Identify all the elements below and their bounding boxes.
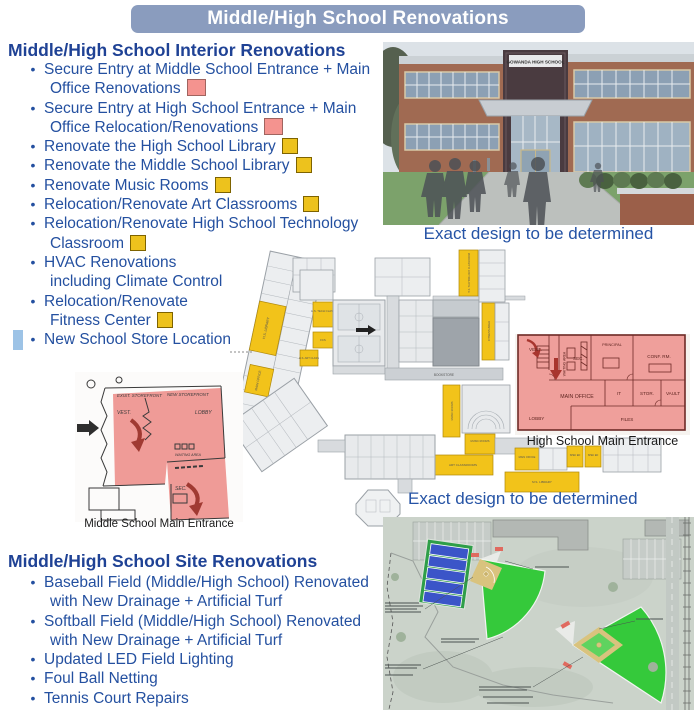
ms-plan-label-exist-storefront: EXIST. STOREFRONT bbox=[117, 393, 162, 398]
bullet-dot: • bbox=[31, 138, 36, 154]
ms-plan-label-new-storefront: NEW STOREFRONT bbox=[167, 392, 209, 397]
slide: Middle/High School Renovations Middle/Hi… bbox=[0, 0, 694, 710]
floorplan-label-bookstore: BOOKSTORE bbox=[434, 373, 454, 377]
hs-entrance-plan-image: VEST. WAITING AREA SEC. PRINCIPAL CONF. … bbox=[515, 334, 690, 435]
pink-legend-swatch bbox=[187, 79, 206, 96]
bullet-text: Office Renovations bbox=[50, 80, 181, 97]
bullet-dot: • bbox=[31, 177, 36, 193]
bullet-text: Baseball Field (Middle/High School) Reno… bbox=[44, 574, 369, 591]
bullet-text: Secure Entry at High School Entrance + M… bbox=[44, 100, 356, 117]
bullet-dot: • bbox=[31, 196, 36, 212]
hs-plan-label-files: FILES bbox=[621, 417, 634, 422]
yellow-legend-swatch bbox=[303, 196, 319, 212]
bullet-text: Relocation/Renovate Art Classrooms bbox=[44, 196, 297, 213]
bullet-text: Relocation/Renovate High School Technolo… bbox=[44, 215, 358, 232]
bullet-text: HVAC Renovations bbox=[44, 254, 176, 271]
bullet-dot: • bbox=[31, 215, 36, 231]
bullet-text: Updated LED Field Lighting bbox=[44, 651, 234, 668]
hs-plan-label-lobby: LOBBY bbox=[529, 416, 544, 421]
yellow-legend-swatch bbox=[215, 177, 231, 193]
site-bullet-item: •Updated LED Field Lighting bbox=[22, 650, 387, 669]
site-heading: Middle/High School Site Renovations bbox=[8, 551, 317, 572]
hs-plan-label-conf: CONF. RM. bbox=[647, 354, 670, 359]
floorplan-label-music-rooms-2: MUSIC ROOMS bbox=[471, 439, 490, 443]
page-banner: Middle/High School Renovations bbox=[131, 5, 585, 33]
interior-bullet-item: •Relocation/Renovate Art Classrooms bbox=[22, 195, 387, 214]
floorplan-label-hs-technology-classroom: H.S. TECHNOLOGY CLASSROOM bbox=[468, 253, 471, 293]
bullet-dot: • bbox=[31, 61, 36, 77]
rendering-caption: Exact design to be determined bbox=[383, 224, 694, 244]
bullet-text: Office Relocation/Renovations bbox=[50, 119, 258, 136]
yellow-legend-swatch bbox=[130, 235, 146, 251]
blue-highlight-marker bbox=[13, 330, 23, 350]
bullet-dot: • bbox=[31, 690, 36, 706]
bullet-dot: • bbox=[31, 331, 36, 347]
ms-plan-label-lobby: LOBBY bbox=[195, 410, 212, 416]
floorplan-label-spec-ed-1: SPEC ED bbox=[570, 454, 581, 457]
interior-bullet-item: •Secure Entry at High School Entrance + … bbox=[22, 99, 387, 138]
yellow-legend-swatch bbox=[282, 138, 298, 154]
building-rendering-image: GOWANDA HIGH SCHOOL bbox=[383, 42, 694, 225]
bullet-dot: • bbox=[31, 293, 36, 309]
hs-plan-label-principal: PRINCIPAL bbox=[602, 343, 622, 347]
ms-entrance-caption: Middle School Main Entrance bbox=[75, 518, 243, 530]
pink-legend-swatch bbox=[264, 118, 283, 135]
bullet-dot: • bbox=[31, 157, 36, 173]
bullet-text: Foul Ball Netting bbox=[44, 670, 158, 687]
floorplan-label-fitness-area: FITNESS AREA bbox=[487, 321, 491, 341]
ms-entrance-plan-image: EXIST. STOREFRONT NEW STOREFRONT VEST. L… bbox=[75, 372, 243, 522]
site-bullet-item: •Tennis Court Repairs bbox=[22, 689, 387, 708]
floorplan-label-music-rooms-1: MUSIC ROOMS bbox=[450, 401, 454, 420]
hs-plan-label-stor: STOR. bbox=[640, 391, 654, 396]
floorplan-label-hs-tech-class: H.S. TECH CLASS bbox=[311, 309, 335, 313]
bullet-text: New School Store Location bbox=[44, 331, 231, 348]
site-plan-image bbox=[383, 517, 694, 710]
hs-entrance-caption: High School Main Entrance bbox=[515, 434, 690, 448]
ms-plan-label-waiting: WAITING AREA bbox=[175, 453, 202, 457]
bullet-text: with New Drainage + Artificial Turf bbox=[50, 632, 282, 649]
yellow-legend-swatch bbox=[157, 312, 173, 328]
yellow-legend-swatch bbox=[296, 157, 312, 173]
bullet-dot: • bbox=[31, 670, 36, 686]
hs-plan-label-vest: VEST. bbox=[529, 347, 542, 352]
bullet-text: including Climate Control bbox=[50, 273, 222, 290]
bullet-text: Classroom bbox=[50, 235, 124, 252]
school-sign-text: GOWANDA HIGH SCHOOL bbox=[506, 60, 564, 65]
interior-heading: Middle/High School Interior Renovations bbox=[8, 40, 345, 61]
bullet-text: Fitness Center bbox=[50, 312, 151, 329]
bullet-text: Tennis Court Repairs bbox=[44, 690, 189, 707]
bullet-text: Renovate the High School Library bbox=[44, 138, 276, 155]
bullet-dot: • bbox=[31, 574, 36, 590]
bullet-text: Secure Entry at Middle School Entrance +… bbox=[44, 61, 370, 78]
site-bullet-item: •Foul Ball Netting bbox=[22, 669, 387, 688]
site-renovations-list: •Baseball Field (Middle/High School) Ren… bbox=[22, 573, 387, 708]
interior-bullet-item: •Renovate Music Rooms bbox=[22, 176, 387, 195]
interior-bullet-item: •Renovate the Middle School Library bbox=[22, 156, 387, 175]
hs-plan-label-vault: VAULT bbox=[666, 391, 680, 396]
bullet-dot: • bbox=[31, 100, 36, 116]
hs-plan-label-sec: SEC. bbox=[573, 356, 584, 361]
floorplan-caption: Exact design to be determined bbox=[408, 489, 638, 509]
interior-bullet-item: •Renovate the High School Library bbox=[22, 137, 387, 156]
hs-plan-label-it: IT bbox=[617, 391, 621, 396]
bullet-dot: • bbox=[31, 613, 36, 629]
hs-plan-label-main-office: MAIN OFFICE bbox=[560, 394, 594, 400]
floorplan-label-ms-library: M.S. LIBRARY bbox=[532, 480, 552, 484]
bullet-text: Renovate the Middle School Library bbox=[44, 157, 290, 174]
floorplan-label-hs-art-class: H.S. ART CLASS bbox=[299, 356, 319, 360]
ms-plan-label-sec: SEC. bbox=[175, 486, 187, 492]
floorplan-label-art-classrooms: ART CLASSROOMS bbox=[449, 463, 477, 467]
bullet-text: with New Drainage + Artificial Turf bbox=[50, 593, 282, 610]
floorplan-label-fcs: FCS bbox=[320, 338, 326, 342]
interior-bullet-item: •Secure Entry at Middle School Entrance … bbox=[22, 60, 387, 99]
bullet-text: Softball Field (Middle/High School) Reno… bbox=[44, 613, 361, 630]
bullet-text: Relocation/Renovate bbox=[44, 293, 188, 310]
hs-plan-label-waiting: WAITING AREA bbox=[563, 351, 567, 376]
bullet-dot: • bbox=[31, 254, 36, 270]
floorplan-label-spec-ed-2: SPEC ED bbox=[588, 454, 599, 457]
site-bullet-item: •Baseball Field (Middle/High School) Ren… bbox=[22, 573, 387, 612]
bullet-dot: • bbox=[31, 651, 36, 667]
site-bullet-item: •Softball Field (Middle/High School) Ren… bbox=[22, 612, 387, 651]
floorplan-label-main-office-hs: MAIN OFFICE bbox=[519, 455, 536, 459]
bullet-text: Renovate Music Rooms bbox=[44, 177, 209, 194]
ms-plan-label-vest: VEST. bbox=[117, 410, 131, 416]
